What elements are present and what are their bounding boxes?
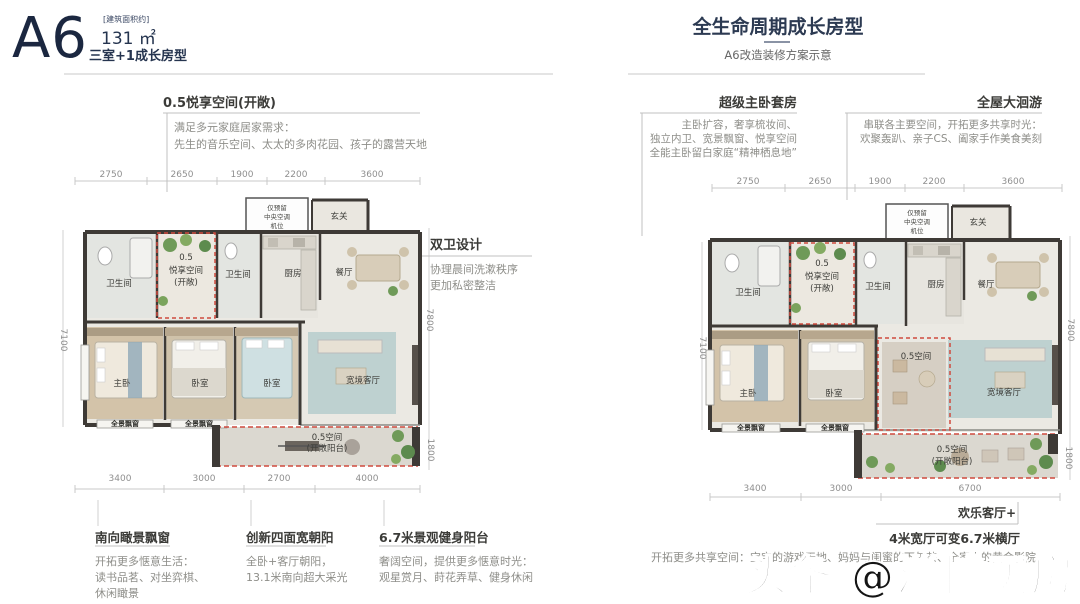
- callout-south-window-title: 南向瞰景飘窗: [95, 527, 170, 546]
- dim-top: 2200: [923, 177, 946, 187]
- room-label-dining: 餐厅: [335, 266, 352, 278]
- room-label-flex: 0.5: [179, 253, 193, 263]
- room-label-flex-living: 0.5空间: [901, 350, 932, 362]
- callout-dual-bath-line1: 协理晨间洗漱秩序: [430, 261, 518, 277]
- callout-four-bays-line2: 13.1米南向超大采光: [246, 569, 348, 585]
- dim-bottom: 2700: [268, 474, 291, 484]
- callout-south-window-line2: 读书品茗、对坐弈棋、: [95, 569, 205, 585]
- callout-master-suite-title: 超级主卧套房: [719, 92, 797, 111]
- room-label-living: 宽境客厅: [346, 374, 380, 386]
- room-label-bedroom2: 卧室: [191, 377, 208, 389]
- room-label-bath1: 卫生间: [106, 277, 132, 289]
- page-subtitle: A6改造装修方案示意: [630, 47, 926, 63]
- dim-top: 1900: [231, 170, 254, 180]
- room-label-bath1: 卫生间: [735, 286, 761, 298]
- callout-dual-bath-title: 双卫设计: [430, 234, 482, 253]
- room-label-bay-window: 全景飘窗: [185, 419, 213, 429]
- room-label-bedroom3: 卧室: [263, 377, 280, 389]
- room-label-balcony: (开敞阳台): [307, 442, 348, 454]
- page-title: 全生命周期成长房型: [630, 12, 926, 39]
- room-label-kitchen: 厨房: [927, 278, 944, 290]
- dim-top: 2750: [737, 177, 760, 187]
- callout-master-suite-line1: 主卧扩容，奢享梳妆间、: [682, 117, 798, 132]
- plan-code: A6: [12, 6, 88, 71]
- dim-bottom: 3000: [830, 484, 853, 494]
- callout-dual-bath-line2: 更加私密整洁: [430, 277, 496, 293]
- callout-happy-living-title: 欢乐客厅+: [958, 504, 1016, 521]
- room-label-bay-window: 全景飘窗: [821, 423, 849, 433]
- dim-top: 2200: [285, 170, 308, 180]
- dim-top: 2650: [171, 170, 194, 180]
- callout-four-bays-title: 创新四面宽朝阳: [246, 527, 334, 546]
- room-label-master: 主卧: [113, 377, 130, 389]
- room-label-ac-reserve: 机位: [271, 220, 284, 230]
- callout-fit-balcony-line1: 奢阔空间，提供更多惬意时光：: [379, 553, 533, 569]
- callout-flex-space-line2: 先生的音乐空间、太太的多肉花园、孩子的露营天地: [174, 136, 427, 152]
- watermark: 头条 @淄博买房: [744, 542, 1076, 604]
- callout-master-suite-line3: 全能主卧留白家庭“精神栖息地”: [650, 145, 797, 160]
- room-label-bedroom2: 卧室: [825, 387, 842, 399]
- dim-bottom: 3000: [193, 474, 216, 484]
- title-divider: [764, 41, 790, 43]
- dim-bottom: 6700: [959, 484, 982, 494]
- dim-left: 7100: [58, 329, 68, 352]
- room-label-bay-window: 全景飘窗: [737, 423, 765, 433]
- dim-right-upper: 7800: [1065, 319, 1075, 342]
- callout-loop-line1: 串联各主要空间，开拓更多共享时光：: [864, 117, 1043, 132]
- dim-right-upper: 7800: [424, 309, 434, 332]
- callout-flex-space-line1: 满足多元家庭居家需求：: [174, 119, 295, 135]
- room-label-balcony: (开敞阳台): [932, 455, 973, 467]
- dim-top: 3600: [361, 170, 384, 180]
- dim-top: 3600: [1002, 177, 1025, 187]
- room-label-entry: 玄关: [969, 216, 986, 228]
- dim-top: 2650: [809, 177, 832, 187]
- floorplan-graphics: [0, 0, 1080, 604]
- dim-left: 7100: [697, 337, 707, 360]
- callout-fit-balcony-line2: 观星赏月、莳花弄草、健身休闲: [379, 569, 533, 585]
- room-label-ac-reserve: 机位: [911, 225, 924, 235]
- room-label-dining: 餐厅: [977, 278, 994, 290]
- callout-south-window-line1: 开拓更多惬意生活：: [95, 553, 194, 569]
- room-label-balcony: 0.5空间: [937, 443, 968, 455]
- callout-four-bays-line1: 全卧+客厅朝阳，: [246, 553, 332, 569]
- dim-right-lower: 1800: [425, 439, 435, 462]
- room-label-flex: (开敞): [174, 276, 198, 288]
- room-label-flex: 悦享空间: [805, 270, 839, 282]
- room-label-flex: 悦享空间: [169, 264, 203, 276]
- callout-south-window-line3: 休闲瞰景: [95, 585, 139, 601]
- room-label-bath2: 卫生间: [865, 280, 891, 292]
- dim-right-lower: 1800: [1063, 447, 1073, 470]
- room-label-entry: 玄关: [330, 210, 347, 222]
- plan-type: 三室+1成长房型: [89, 45, 187, 64]
- room-label-bath2: 卫生间: [225, 268, 251, 280]
- dim-bottom: 3400: [744, 484, 767, 494]
- room-label-master: 主卧: [739, 387, 756, 399]
- callout-fit-balcony-title: 6.7米景观健身阳台: [379, 527, 489, 546]
- callout-loop-line2: 欢聚轰趴、亲子CS、阖家手作美食美刻: [860, 131, 1042, 146]
- floorplan-poster: { "header": { "plan_code": "A6", "area_b…: [0, 0, 1080, 604]
- room-label-bay-window: 全景飘窗: [111, 419, 139, 429]
- dim-top: 1900: [869, 177, 892, 187]
- callout-loop-title: 全屋大洄游: [977, 92, 1042, 111]
- dim-bottom: 3400: [109, 474, 132, 484]
- room-label-flex: (开敞): [810, 282, 834, 294]
- dim-top: 2750: [100, 170, 123, 180]
- room-label-kitchen: 厨房: [284, 267, 301, 279]
- room-label-living: 宽境客厅: [987, 386, 1021, 398]
- room-label-flex: 0.5: [815, 259, 829, 269]
- callout-flex-space-title: 0.5悦享空间(开敞): [163, 92, 276, 111]
- callout-master-suite-line2: 独立内卫、宽景飘窗、悦享空间: [650, 131, 797, 146]
- dim-bottom: 4000: [356, 474, 379, 484]
